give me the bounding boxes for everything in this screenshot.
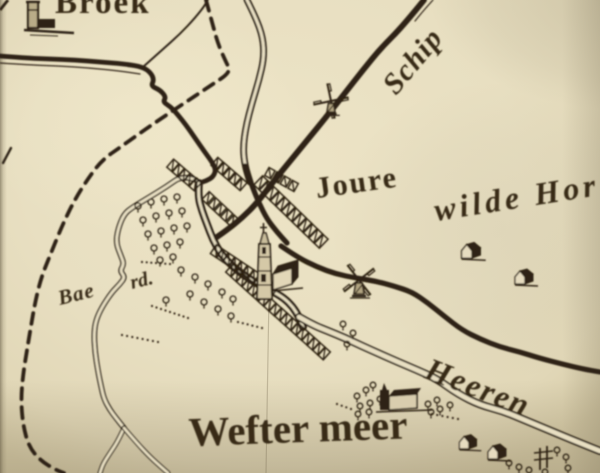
svg-text:Wefter meer: Wefter meer — [188, 401, 408, 455]
svg-text:Broek: Broek — [55, 0, 151, 21]
